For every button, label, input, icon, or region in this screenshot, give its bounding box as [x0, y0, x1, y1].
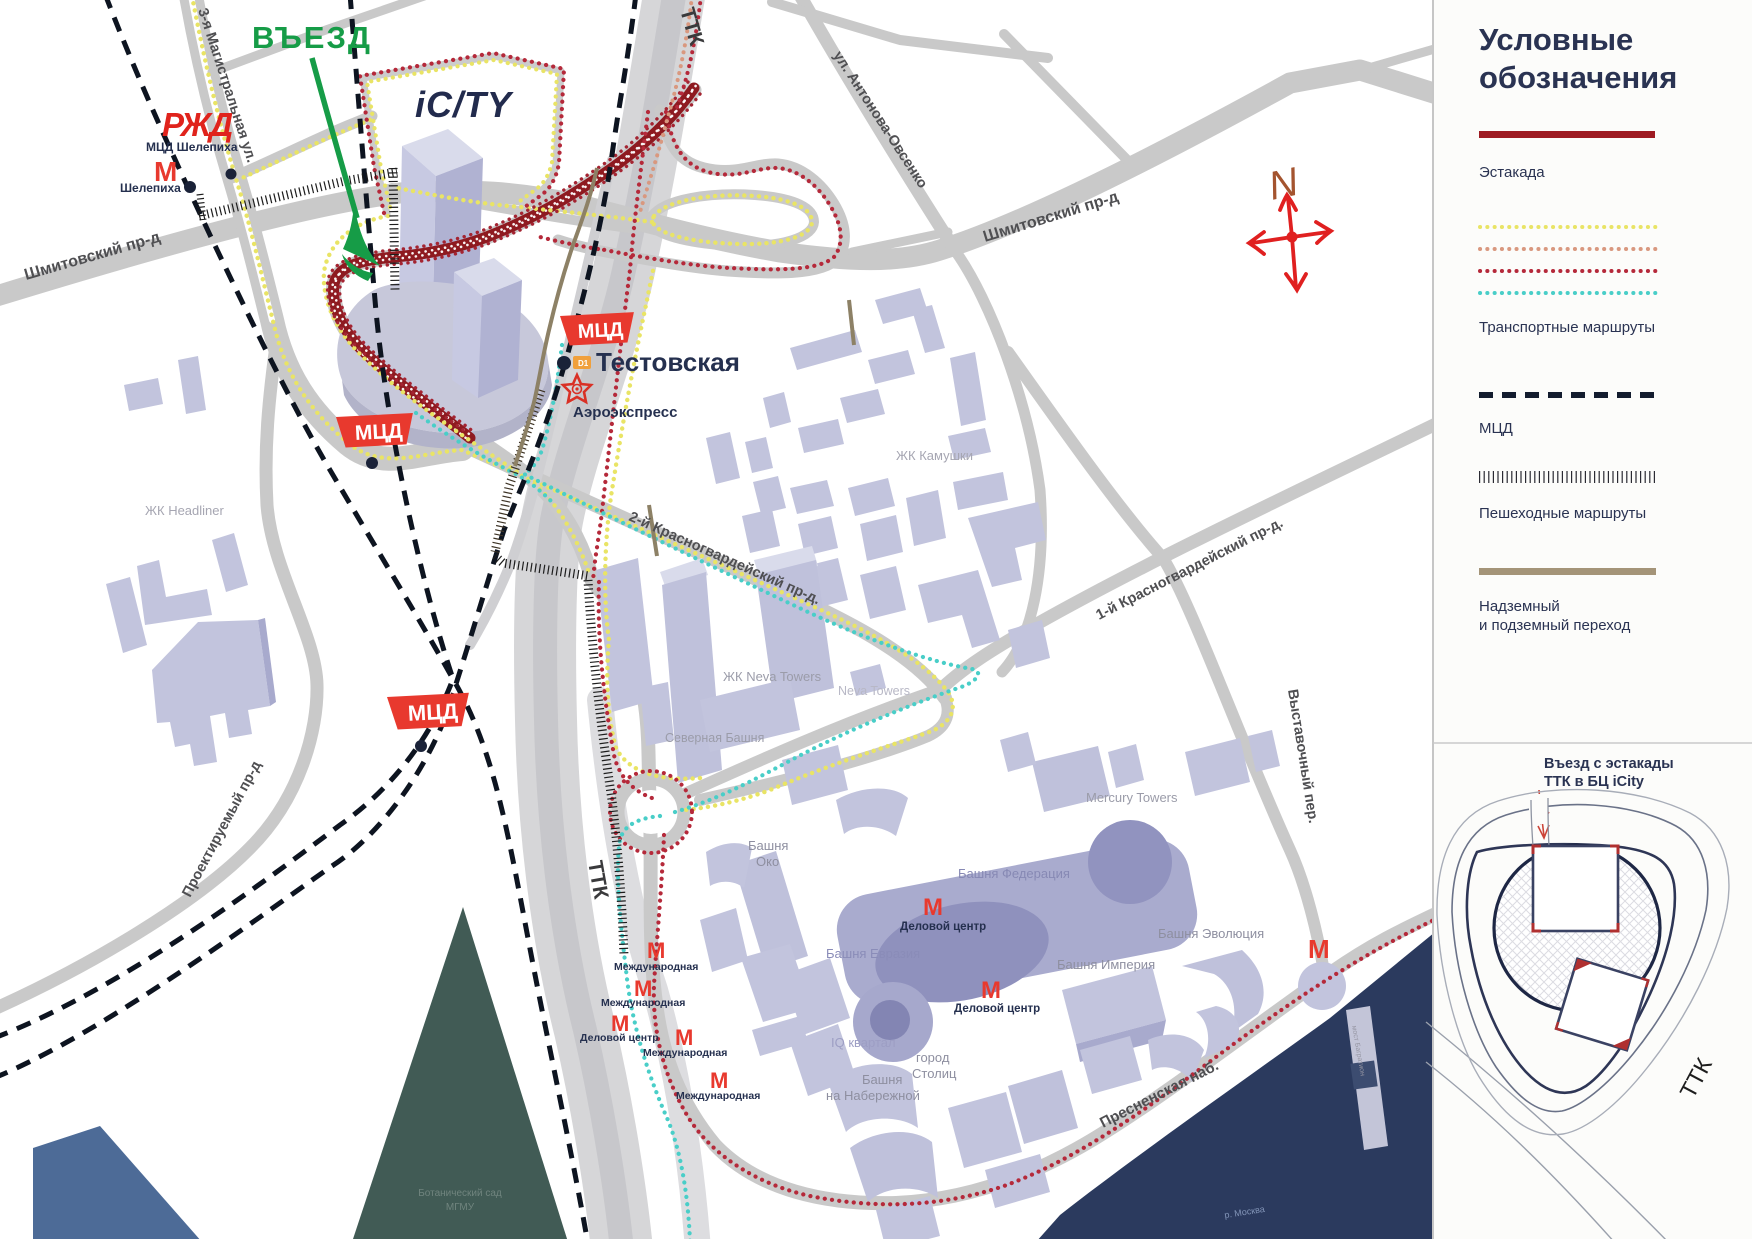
svg-text:D1: D1: [578, 359, 589, 368]
svg-text:Деловой центр: Деловой центр: [900, 921, 986, 933]
svg-text:МЦД: МЦД: [407, 698, 459, 726]
svg-text:М: М: [1308, 934, 1330, 964]
svg-text:МГМУ: МГМУ: [446, 1202, 475, 1213]
svg-text:Деловой центр: Деловой центр: [954, 1003, 1040, 1015]
svg-text:ЖК Headliner: ЖК Headliner: [145, 503, 225, 518]
svg-text:Столиц: Столиц: [912, 1066, 957, 1081]
svg-text:М: М: [981, 977, 1001, 1004]
svg-text:Mercury Towers: Mercury Towers: [1086, 790, 1178, 805]
svg-text:Условные: Условные: [1479, 22, 1633, 57]
svg-text:Эстакада: Эстакада: [1479, 164, 1545, 181]
svg-text:Башня Империя: Башня Империя: [1057, 957, 1155, 972]
svg-text:Башня Евразия: Башня Евразия: [826, 946, 920, 961]
svg-text:Башня Эволюция: Башня Эволюция: [1158, 926, 1264, 941]
svg-text:Надземный: Надземный: [1479, 598, 1560, 615]
svg-text:ТТК в БЦ iCity: ТТК в БЦ iCity: [1544, 774, 1644, 790]
svg-text:М: М: [923, 894, 943, 921]
svg-text:Международная: Международная: [614, 961, 698, 973]
svg-text:Аэроэкспресс: Аэроэкспресс: [573, 404, 677, 421]
svg-text:Башня: Башня: [862, 1072, 902, 1087]
svg-text:Северная Башня: Северная Башня: [665, 731, 764, 745]
svg-text:М: М: [647, 938, 665, 963]
svg-text:Международная: Международная: [676, 1090, 760, 1102]
svg-text:МЦД: МЦД: [1479, 420, 1513, 437]
svg-text:обозначения: обозначения: [1479, 60, 1677, 95]
svg-text:город: город: [916, 1050, 950, 1065]
svg-text:на Набережной: на Набережной: [826, 1088, 920, 1103]
svg-text:Ботанический сад: Ботанический сад: [418, 1188, 502, 1199]
svg-text:Башня Федерация: Башня Федерация: [958, 866, 1070, 881]
svg-text:Международная: Международная: [601, 997, 685, 1009]
svg-text:ЖК Neva Towers: ЖК Neva Towers: [723, 669, 822, 684]
svg-text:Башня: Башня: [748, 838, 788, 853]
svg-text:Въезд с эстакады: Въезд с эстакады: [1544, 756, 1674, 772]
svg-text:Тестовская: Тестовская: [596, 347, 740, 377]
svg-text:Око: Око: [756, 854, 779, 869]
svg-text:Neva Towers: Neva Towers: [838, 684, 910, 698]
svg-text:Транспортные маршруты: Транспортные маршруты: [1479, 319, 1655, 336]
svg-text:РЖД: РЖД: [162, 106, 232, 143]
svg-text:МЦД: МЦД: [577, 319, 624, 343]
svg-text:Международная: Международная: [643, 1047, 727, 1059]
svg-text:IQ квартал: IQ квартал: [831, 1035, 896, 1050]
svg-text:Шелепиха: Шелепиха: [120, 181, 181, 195]
svg-text:и подземный переход: и подземный переход: [1479, 617, 1631, 634]
svg-text:iC/TY: iC/TY: [415, 84, 514, 125]
svg-text:Пешеходные маршруты: Пешеходные маршруты: [1479, 505, 1646, 522]
svg-text:МЦД Шелепиха: МЦД Шелепиха: [146, 140, 238, 154]
svg-text:ВЪЕЗД: ВЪЕЗД: [252, 20, 372, 55]
svg-text:ЖК Камушки: ЖК Камушки: [896, 448, 973, 463]
svg-text:Деловой центр: Деловой центр: [580, 1032, 659, 1044]
svg-text:МЦД: МЦД: [354, 420, 403, 445]
